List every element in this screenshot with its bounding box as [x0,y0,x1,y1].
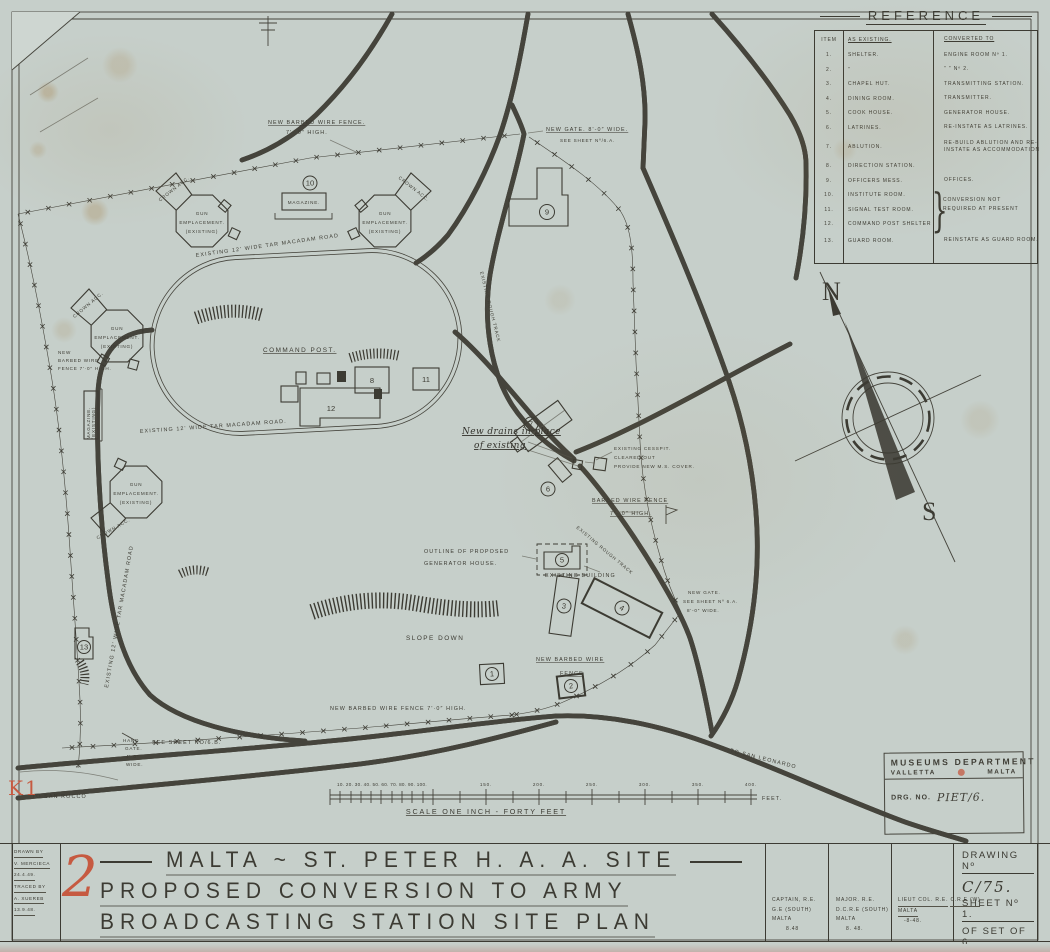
scrub-command-post [350,353,400,358]
label-to-san-rocco: TO SAN ROCCO [32,794,87,800]
bracket-note: CONVERSION NOT REQUIRED AT PRESENT [943,196,1031,213]
svg-text:2: 2 [568,681,573,690]
reference-title-row: REFERENCE [814,4,1038,28]
table-row: 7.ABLUTION.RE-BUILD ABLUTION AND RE-INST… [815,135,1037,159]
label-fence-left: NEW [58,350,71,355]
label-fence-mid: BARBED WIRE FENCE [592,498,668,504]
scrub-oval [196,311,262,318]
label-to-san-leonardo: TO SAN LEONARDO [730,748,798,770]
svg-text:6: 6 [546,485,550,494]
svg-text:1: 1 [490,669,495,678]
svg-text:4: 4 [618,603,626,613]
svg-text:(EXISTING): (EXISTING) [120,500,153,505]
table-row: 8.DIRECTION STATION. [815,159,1037,174]
scrub-patches [80,311,500,684]
stamp-red-dot [958,769,965,776]
reference-table: REFERENCE ITEM AS EXISTING. CONVERTED TO… [814,4,1038,266]
title-block-divider-1 [765,844,766,941]
drawing-sheet: CROWN ACC. GUN EMPLACEMENT. (EXISTING) C… [0,0,1050,952]
scale-bar: 10. 20. 30. 40. 50. 60. 70. 80. 90. 100.… [330,782,782,816]
svg-text:13: 13 [80,642,88,651]
title-block-divider-drawn [60,844,61,941]
red-sheet-number: 2 [62,850,98,906]
svg-text:(EXISTING): (EXISTING) [186,229,219,234]
building-10-marker: 10 [303,176,317,190]
traced-by-label: TRACED BY [14,882,46,893]
museums-stamp: MUSEUMS DEPARTMENT VALLETTA MALTA DRG. N… [884,751,1025,834]
drawing-title-line-2: PROPOSED CONVERSION TO ARMY [100,879,628,906]
svg-text:GUN: GUN [111,326,124,331]
scale-cluster: 10. 20. 30. 40. 50. 60. 70. 80. 90. 100. [337,782,427,787]
stamp-department: MUSEUMS DEPARTMENT [891,756,1017,767]
title-dash-left [820,16,860,17]
title-block-border-right [1037,844,1038,941]
svg-text:BARBED WIRE: BARBED WIRE [58,358,99,363]
svg-text:4'·0″: 4'·0″ [126,754,139,759]
svg-text:SEE SHEET Nº/6.A.: SEE SHEET Nº/6.A. [560,138,615,143]
label-drains-1: New drains in place [461,427,561,437]
label-fence-top: NEW BARBED WIRE FENCE. [268,120,365,126]
svg-text:FENCE: FENCE [560,671,584,677]
building-4: 4 [582,578,662,637]
signature-major: MAJOR. R.E.D.C.R.E (SOUTH) MALTA8. 48. [836,896,889,934]
building-6: 6 [541,458,583,496]
svg-text:(EXISTING): (EXISTING) [369,229,402,234]
svg-text:SEE SHEET Nº 6.A.: SEE SHEET Nº 6.A. [683,599,738,604]
svg-text:GATE.: GATE. [125,746,142,751]
title-block-border-left [12,844,13,941]
red-mark-k1: K1 [8,776,40,800]
building-2: 2 [557,673,585,698]
field-lines-top-left [30,58,98,132]
cesspit [593,457,607,471]
svg-text:200.: 200. [533,782,545,787]
pole-symbol [122,16,677,742]
stamp-drg-number: PIET/6. [937,791,985,805]
road-oval-loop [148,246,465,438]
drawing-title-line-3: BROADCASTING STATION SITE PLAN [100,910,655,937]
compass-south-label: S [922,497,936,526]
fence-x-marks [18,222,82,768]
drawing-titles: MALTA ~ ST. PETER H. A. A. SITE PROPOSED… [100,846,750,939]
svg-text:FENCE 7'·0″ HIGH.: FENCE 7'·0″ HIGH. [58,366,112,371]
traced-date: 13.9.48. [14,905,35,916]
table-row: 9.OFFICERS MESS.OFFICES. [815,174,1037,189]
label-see-sheet-6b: SEE SHEET NO/6.B. [152,740,222,746]
building-5-generator: 5 [537,544,587,575]
stamp-island: MALTA [987,768,1016,775]
label-gate-6a: NEW GATE. [688,590,721,595]
svg-text:7'· 0″ HIGH.: 7'· 0″ HIGH. [286,130,328,136]
table-row: 2.”” ” Nº 2. [815,63,1037,78]
title-dash [100,861,152,863]
scale-label: SCALE ONE INCH - FORTY FEET [406,807,566,816]
svg-text:150.: 150. [480,782,492,787]
fence-x-marks [535,140,678,602]
title-block-divider-3 [891,844,892,941]
compass-rose: N S [795,272,981,562]
svg-text:8: 8 [370,376,374,385]
building-13: 13 [75,628,93,659]
drawing-title-line-1: MALTA ~ ST. PETER H. A. A. SITE [166,848,676,875]
gate-flag [666,505,677,524]
signature-captain: CAPTAIN, R.E.G.E (SOUTH) MALTA8.48 [772,896,816,934]
label-hand-gate: HAND [123,738,139,743]
compass-needle [845,322,915,500]
svg-text:11: 11 [422,375,430,384]
table-row: 3.CHAPEL HUT.TRANSMITTING STATION. [815,77,1037,92]
building-magazine-top: MAGAZINE. 10 [275,176,332,219]
svg-text:400.: 400. [745,782,757,787]
svg-text:EMPLACEMENT.: EMPLACEMENT. [179,220,224,225]
drawn-traced-box: DRAWN BY V. MERCIECA 24.4.49. TRACED BY … [14,847,58,917]
sheet-no: SHEET Nº 1. [962,898,1034,922]
fence-west [18,214,80,768]
drawing-no-value: C/75. [962,878,1034,896]
east-boundary [643,168,757,736]
table-row: 5.COOK HOUSE.GENERATOR HOUSE. [815,106,1037,121]
svg-text:10: 10 [306,179,314,188]
svg-text:(EXISTING): (EXISTING) [91,407,96,440]
drawn-by-label: DRAWN BY [14,847,43,858]
scrub-small-west [180,570,208,574]
rough-track-north [487,105,574,461]
label-existing-building: EXISTING BUILDING [545,573,616,579]
table-row: 12.COMMAND POST SHELTER [815,217,1037,232]
table-divider-1 [843,31,844,263]
svg-text:9: 9 [545,208,549,217]
svg-text:MAGAZINE.: MAGAZINE. [288,200,320,205]
svg-text:PROVIDE NEW M.S. COVER.: PROVIDE NEW M.S. COVER. [614,464,695,469]
crown-acc-label: CROWN ACC. [72,291,104,319]
stamp-drg-label: DRG. NO. [891,794,931,801]
svg-text:GUN: GUN [379,211,392,216]
label-command-post: COMMAND POST. [263,347,336,354]
svg-text:GUN: GUN [196,211,209,216]
svg-text:250.: 250. [586,782,598,787]
building-1: 1 [479,663,504,684]
label-fence-new-1: NEW BARBED WIRE [536,657,604,663]
drawing-number-box: DRAWING Nº C/75. SHEET Nº 1. OF SET OF 6 [962,850,1034,952]
svg-text:350.: 350. [692,782,704,787]
svg-text:WIDE.: WIDE. [126,762,143,767]
scale-ticks [330,789,751,805]
reference-title: REFERENCE [866,8,986,25]
traced-by-name: A. XUEREB [14,894,44,905]
drawn-date: 24.4.49. [14,870,35,881]
svg-text:12: 12 [327,404,335,413]
svg-text:EMPLACEMENT.: EMPLACEMENT. [113,491,158,496]
paper-edge [0,944,1050,952]
building-9: 9 [509,168,568,226]
svg-text:CLEARED OUT: CLEARED OUT [614,455,655,460]
road-left [97,330,305,741]
title-dash [690,861,742,863]
label-drains-2: of existing [474,441,526,451]
svg-text:GENERATOR HOUSE.: GENERATOR HOUSE. [424,561,497,567]
table-row: 6.LATRINES.RE-INSTATE AS LATRINES. [815,121,1037,136]
stamp-header: MUSEUMS DEPARTMENT VALLETTA MALTA [885,752,1023,779]
gun-emplacement-2: CROWN ACC. GUN EMPLACEMENT. (EXISTING) [348,173,431,247]
label-track-se: EXISTING ROUGH TRACK [575,525,634,576]
label-slope-down: SLOPE DOWN [406,635,464,642]
leader-lines [330,131,640,572]
svg-text:EMPLACEMENT.: EMPLACEMENT. [94,335,139,340]
compass-north-label: N [822,277,841,306]
svg-text:300.: 300. [639,782,651,787]
crown-acc-label: CROWN ACC. [158,175,191,202]
title-block-divider-2 [828,844,829,941]
map-labels: NEW BARBED WIRE FENCE. 7'· 0″ HIGH. NEW … [32,120,797,800]
svg-text:7'· 0″ HIGH.: 7'· 0″ HIGH. [610,511,652,517]
svg-text:8'-0″ WIDE.: 8'-0″ WIDE. [687,608,720,613]
scrub-near-guard-room [80,662,85,684]
title-dash-right [992,16,1032,17]
road-top-left [242,14,392,160]
svg-text:5: 5 [560,555,564,564]
gun-emplacement-1: CROWN ACC. GUN EMPLACEMENT. (EXISTING) [156,173,240,247]
reference-table-box: ITEM AS EXISTING. CONVERTED TO 1.SHELTER… [814,30,1038,264]
stamp-city: VALLETTA [891,769,936,776]
reference-table-header: ITEM AS EXISTING. CONVERTED TO [815,31,1037,48]
label-gate-top: NEW GATE. 8'-0″ WIDE. [546,127,628,133]
table-row: 1.SHELTER.ENGINE ROOM Nº 1. [815,48,1037,63]
svg-text:EMPLACEMENT.: EMPLACEMENT. [362,220,407,225]
title-block: DRAWN BY V. MERCIECA 24.4.49. TRACED BY … [0,843,1050,942]
svg-text:FEET.: FEET. [762,796,782,802]
building-3: 3 [549,576,579,636]
fence-x-marks [26,134,507,215]
crown-acc-label: CROWN ACC. [397,175,430,202]
scrub-south-large [312,600,500,612]
svg-text:GUN: GUN [130,482,143,487]
label-fence-bottom: NEW BARBED WIRE FENCE 7'·0″ HIGH. [330,706,467,712]
label-generator-1: OUTLINE OF PROPOSED [424,549,509,555]
table-row: 13.GUARD ROOM.REINSTATE AS GUARD ROOM. [815,232,1037,250]
svg-text:3: 3 [561,601,566,611]
table-row: 4.DINING ROOM.TRANSMITTER. [815,92,1037,107]
drawn-by-name: V. MERCIECA [14,859,50,870]
road-top-right-2 [712,14,806,278]
svg-text:(EXISTING): (EXISTING) [101,344,134,349]
drawing-no-label: DRAWING Nº [962,850,1034,874]
label-cesspit-1: EXISTING CESSPIT. [614,446,671,451]
